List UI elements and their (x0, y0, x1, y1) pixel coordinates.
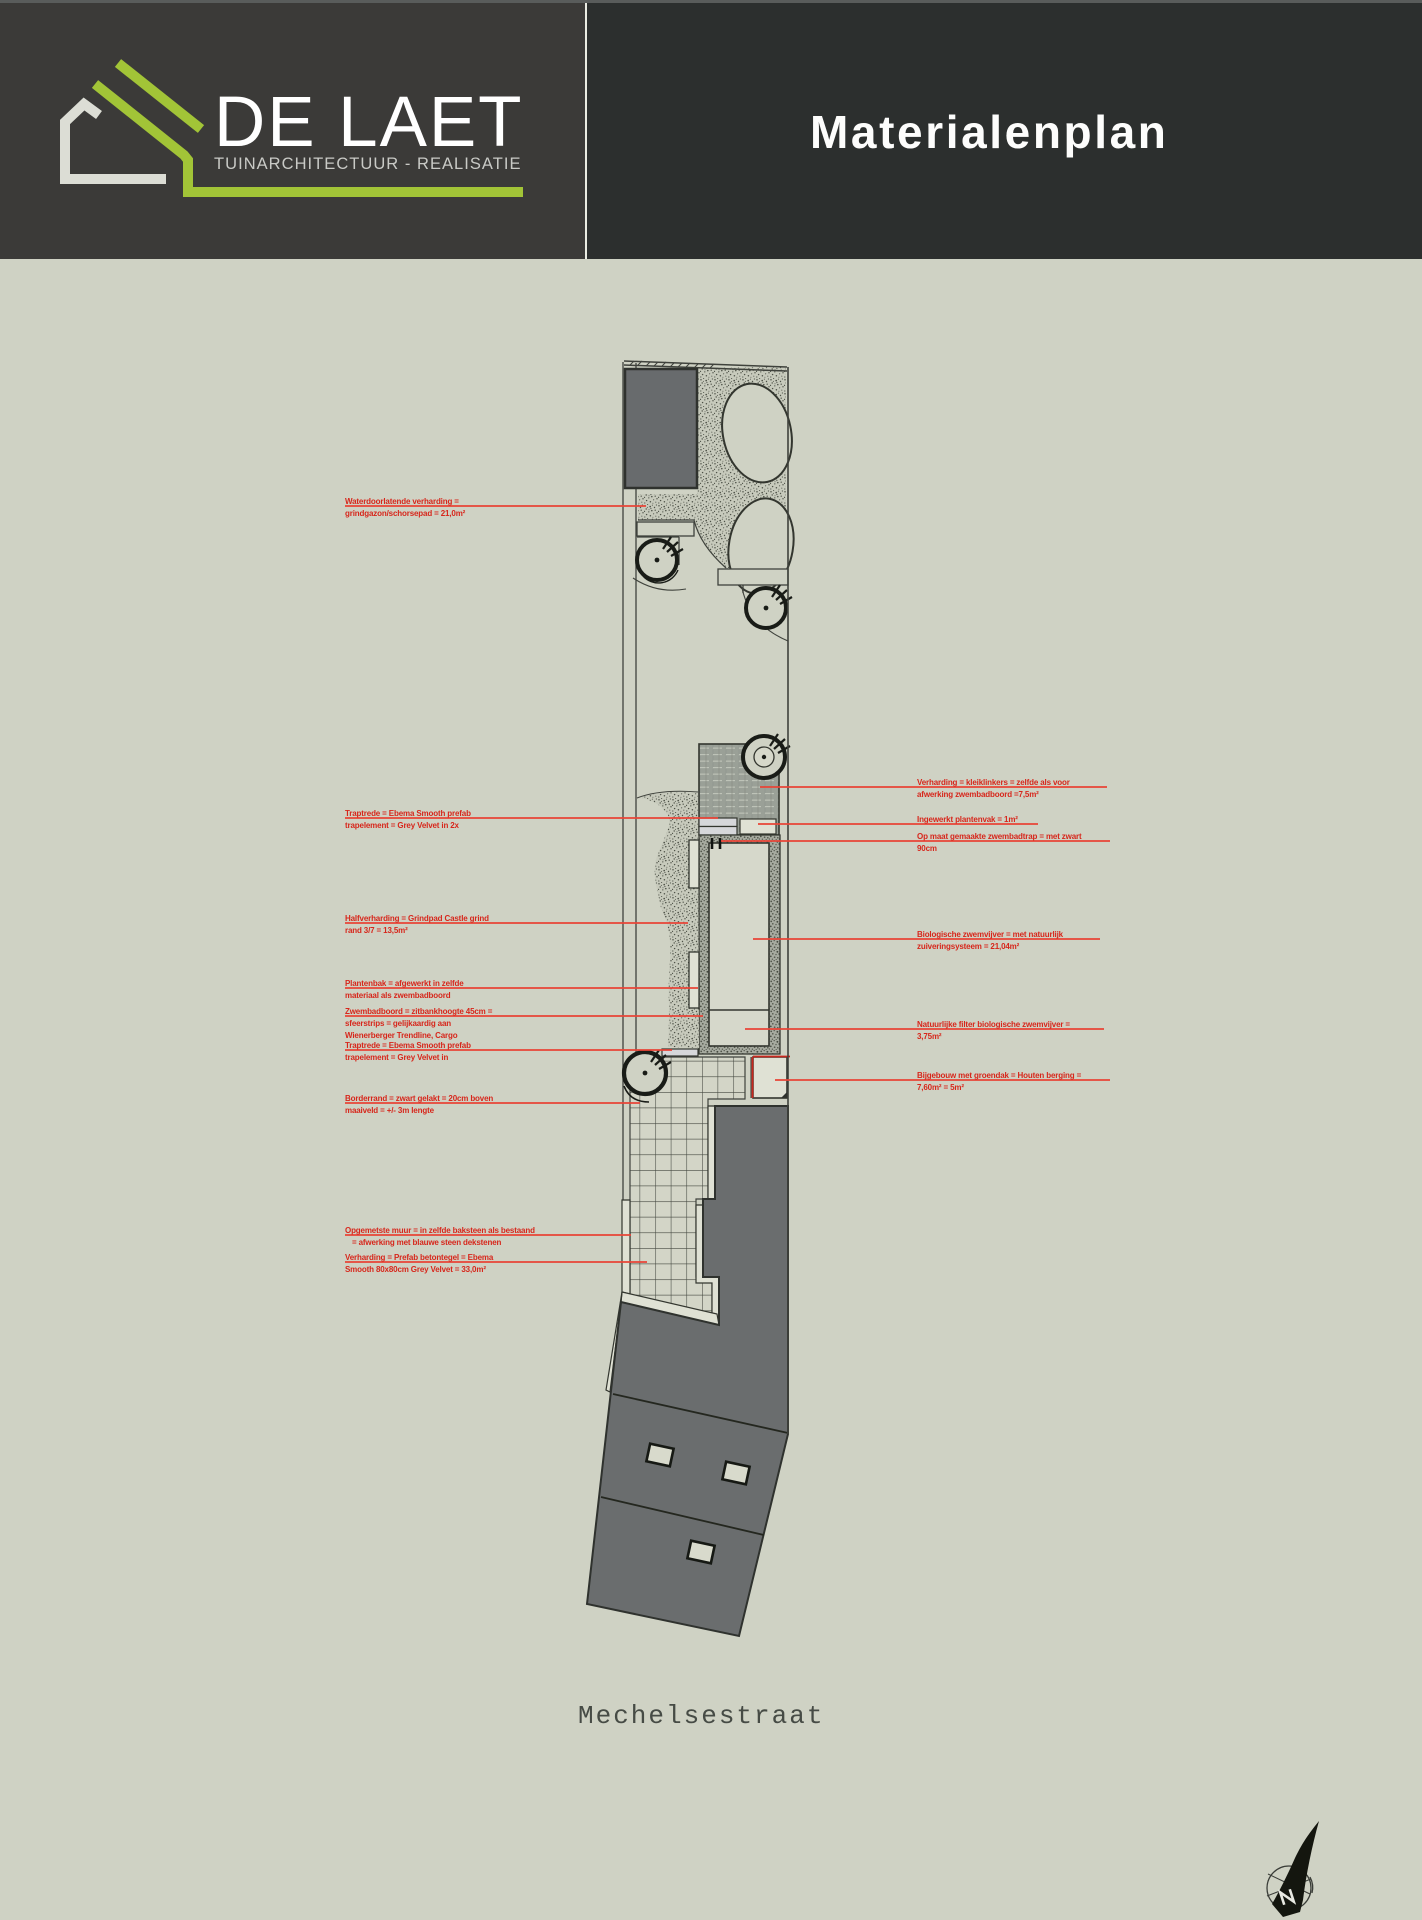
svg-text:Waterdoorlatende verharding =: Waterdoorlatende verharding = (345, 497, 459, 506)
svg-text:Zwembadboord = zitbankhoogte 4: Zwembadboord = zitbankhoogte 45cm = (345, 1007, 493, 1016)
svg-text:Natuurlijke filter biologische: Natuurlijke filter biologische zwemvijve… (917, 1020, 1070, 1029)
svg-text:Verharding = kleiklinkers = ze: Verharding = kleiklinkers = zelfde als v… (917, 778, 1070, 787)
svg-text:afwerking zwembadboord =7,5m²: afwerking zwembadboord =7,5m² (917, 790, 1039, 799)
svg-text:maaiveld = +/- 3m lengte: maaiveld = +/- 3m lengte (345, 1106, 435, 1115)
svg-text:Traptrede = Ebema Smooth prefa: Traptrede = Ebema Smooth prefab (345, 1041, 471, 1050)
svg-text:Wienerberger Trendline, Cargo: Wienerberger Trendline, Cargo (345, 1031, 458, 1040)
svg-text:Traptrede = Ebema Smooth prefa: Traptrede = Ebema Smooth prefab (345, 809, 471, 818)
svg-text:trapelement = Grey Velvet in 2: trapelement = Grey Velvet in 2x (345, 821, 460, 830)
svg-text:Op maat gemaakte zwembadtrap =: Op maat gemaakte zwembadtrap = met zwart (917, 832, 1082, 841)
svg-text:sfeerstrips = gelijkaardig aan: sfeerstrips = gelijkaardig aan (345, 1019, 451, 1028)
svg-text:7,60m² = 5m²: 7,60m² = 5m² (917, 1083, 964, 1092)
svg-text:Plantenbak = afgewerkt in zelf: Plantenbak = afgewerkt in zelfde (345, 979, 464, 988)
svg-text:Biologische zwemvijver = met n: Biologische zwemvijver = met natuurlijk (917, 930, 1064, 939)
svg-text:zuiveringsysteem = 21,04m²: zuiveringsysteem = 21,04m² (917, 942, 1020, 951)
svg-text:3,75m²: 3,75m² (917, 1032, 942, 1041)
svg-text:Mechelsestraat: Mechelsestraat (578, 1701, 824, 1731)
svg-text:90cm: 90cm (917, 844, 937, 853)
svg-text:Halfverharding = Grindpad Cast: Halfverharding = Grindpad Castle grind (345, 914, 489, 923)
svg-text:Verharding = Prefab betontegel: Verharding = Prefab betontegel = Ebema (345, 1253, 494, 1262)
svg-text:Bijgebouw met groendak = Houte: Bijgebouw met groendak = Houten berging … (917, 1071, 1082, 1080)
svg-text:trapelement = Grey Velvet in: trapelement = Grey Velvet in (345, 1053, 448, 1062)
svg-text:rand 3/7 = 13,5m²: rand 3/7 = 13,5m² (345, 926, 408, 935)
svg-text:Opgemetste muur = in zelfde ba: Opgemetste muur = in zelfde baksteen als… (345, 1226, 535, 1235)
svg-text:Smooth 80x80cm Grey Velvet = 3: Smooth 80x80cm Grey Velvet = 33,0m² (345, 1265, 486, 1274)
svg-text:= afwerking met blauwe steen d: = afwerking met blauwe steen dekstenen (352, 1238, 502, 1247)
svg-text:grindgazon/schorsepad = 21,0m²: grindgazon/schorsepad = 21,0m² (345, 509, 466, 518)
svg-text:Ingewerkt plantenvak = 1m²: Ingewerkt plantenvak = 1m² (917, 815, 1018, 824)
svg-text:Borderrand = zwart gelakt = 20: Borderrand = zwart gelakt = 20cm boven (345, 1094, 493, 1103)
svg-text:materiaal als zwembadboord: materiaal als zwembadboord (345, 991, 451, 1000)
